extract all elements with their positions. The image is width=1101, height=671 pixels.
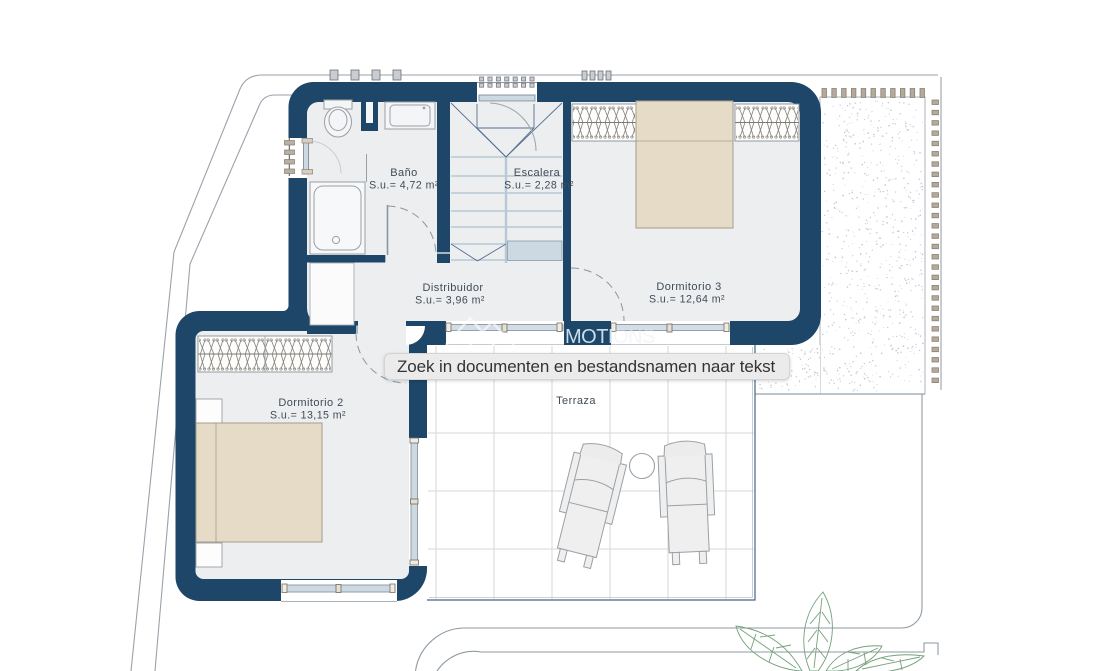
svg-text:S.u.= 3,96 m²: S.u.= 3,96 m² — [415, 295, 485, 307]
svg-text:Terraza: Terraza — [556, 395, 596, 407]
svg-text:Dormitorio 3: Dormitorio 3 — [656, 281, 721, 293]
svg-text:ONS: ONS — [613, 326, 655, 348]
svg-text:S.u.= 12,64 m²: S.u.= 12,64 m² — [649, 294, 725, 306]
svg-text:MOTI: MOTI — [565, 326, 613, 348]
svg-text:Escalera: Escalera — [514, 167, 561, 179]
svg-text:Dormitorio 2: Dormitorio 2 — [278, 397, 343, 409]
svg-text:Baño: Baño — [390, 167, 418, 179]
svg-text:S.u.= 13,15 m²: S.u.= 13,15 m² — [270, 410, 346, 422]
svg-text:S.u.= 4,72 m²: S.u.= 4,72 m² — [369, 180, 439, 192]
svg-text:S.u.= 2,28 m²: S.u.= 2,28 m² — [504, 180, 574, 192]
svg-text:Distribuidor: Distribuidor — [422, 282, 483, 294]
